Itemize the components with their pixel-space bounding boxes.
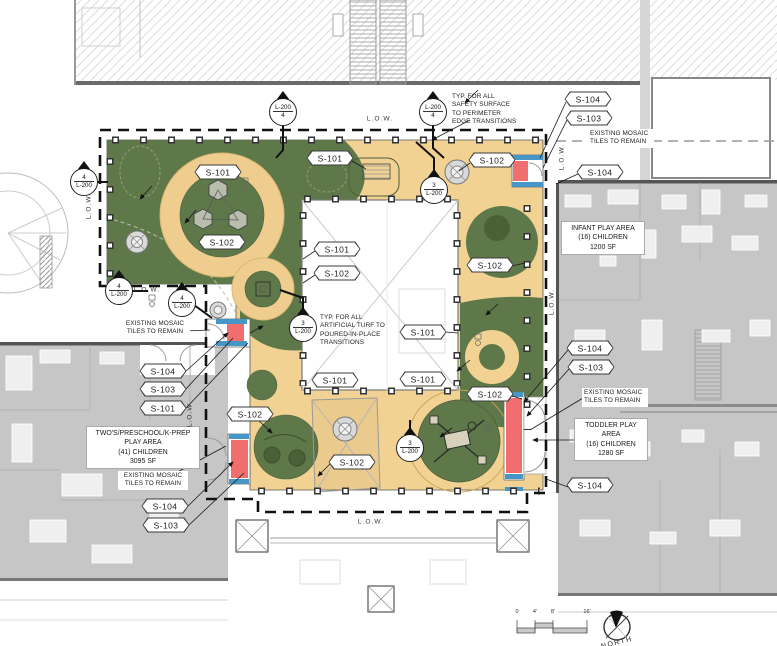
detail-marker-triangle-icon — [297, 307, 309, 315]
spec-tag-s-102: S-102 — [199, 235, 246, 250]
scale-tick-label: 16' — [583, 609, 590, 615]
spec-tag-s-102: S-102 — [467, 258, 514, 273]
callout: TYP. FOR ALLARTIFICIAL TURF TOPOURED-IN-… — [320, 314, 386, 347]
spec-tag-s-101: S-101 — [312, 373, 359, 388]
detail-marker: 3L-200 — [289, 314, 317, 342]
spec-tag-s-103: S-103 — [143, 518, 190, 533]
detail-marker: 4L-200 — [168, 289, 196, 317]
limit-of-work-label: L.O.W. — [549, 289, 556, 315]
spec-tag-s-104: S-104 — [567, 478, 614, 493]
callout: TYP. FOR ALLSAFETY SURFACETO PERIMETERED… — [452, 93, 518, 126]
spec-tag-s-103: S-103 — [140, 382, 187, 397]
floor-plan-drawing: NORTH S-101S-102S-101S-102S-101S-102S-10… — [0, 0, 777, 646]
spec-tag-s-103: S-103 — [566, 111, 613, 126]
callout: EXISTING MOSAICTILES TO REMAIN — [120, 319, 190, 338]
spec-tag-s-102: S-102 — [314, 266, 361, 281]
spec-tag-s-102: S-102 — [467, 387, 514, 402]
spec-tag-s-102: S-102 — [469, 153, 516, 168]
detail-marker-triangle-icon — [427, 91, 439, 99]
spec-tag-s-102: S-102 — [227, 407, 274, 422]
limit-of-work-label: L.O.W. — [86, 193, 93, 219]
detail-marker: 3L-200 — [396, 434, 424, 462]
spec-tag-s-104: S-104 — [567, 341, 614, 356]
detail-marker-triangle-icon — [176, 282, 188, 290]
spec-tag-s-103: S-103 — [568, 360, 615, 375]
detail-marker: 4L-200 — [70, 168, 98, 196]
scale-tick-label: 0 — [515, 609, 518, 615]
detail-marker-triangle-icon — [113, 270, 125, 278]
detail-marker: 3L-200 — [420, 176, 448, 204]
spec-tag-s-104: S-104 — [140, 364, 187, 379]
detail-marker-triangle-icon — [428, 169, 440, 177]
limit-of-work-label: L.O.W. — [134, 287, 160, 294]
detail-marker-triangle-icon — [277, 91, 289, 99]
spec-tag-s-102: S-102 — [329, 455, 376, 470]
spec-tag-s-104: S-104 — [577, 165, 624, 180]
detail-marker-triangle-icon — [404, 427, 416, 435]
area-label: TODDLER PLAYAREA(16) CHILDREN1280 SF — [574, 418, 648, 461]
annotations-overlay: NORTH S-101S-102S-101S-102S-101S-102S-10… — [0, 0, 777, 646]
callout: EXISTING MOSAICTILES TO REMAIN — [588, 129, 654, 148]
north-label: NORTH — [600, 636, 633, 646]
callout: EXISTING MOSAICTILES TO REMAIN — [118, 471, 188, 490]
detail-marker: L-2004 — [419, 98, 447, 126]
limit-of-work-label: L.O.W. — [559, 144, 566, 170]
spec-tag-s-104: S-104 — [142, 499, 189, 514]
area-label: INFANT PLAY AREA(16) CHILDREN1200 SF — [561, 221, 645, 255]
area-label: TWO'S/PRESCHOOL/K-PREPPLAY AREA(41) CHIL… — [86, 426, 200, 469]
spec-tag-s-101: S-101 — [400, 325, 447, 340]
spec-tag-s-101: S-101 — [400, 372, 447, 387]
scale-tick-label: 4' — [533, 609, 537, 615]
spec-tag-s-101: S-101 — [314, 242, 361, 257]
spec-tag-s-101: S-101 — [140, 401, 187, 416]
spec-tag-s-104: S-104 — [565, 92, 612, 107]
scale-tick-label: 8' — [551, 609, 555, 615]
spec-tag-s-101: S-101 — [307, 151, 354, 166]
detail-marker: 4L-200 — [105, 277, 133, 305]
limit-of-work-label: L.O.W. — [367, 116, 393, 123]
callout: EXISTING MOSAICTILES TO REMAIN — [582, 388, 648, 407]
limit-of-work-label: L.O.W. — [358, 519, 384, 526]
detail-marker: L-2004 — [269, 98, 297, 126]
detail-marker-triangle-icon — [78, 161, 90, 169]
spec-tag-s-101: S-101 — [195, 165, 242, 180]
limit-of-work-label: L.O.W. — [187, 401, 194, 427]
